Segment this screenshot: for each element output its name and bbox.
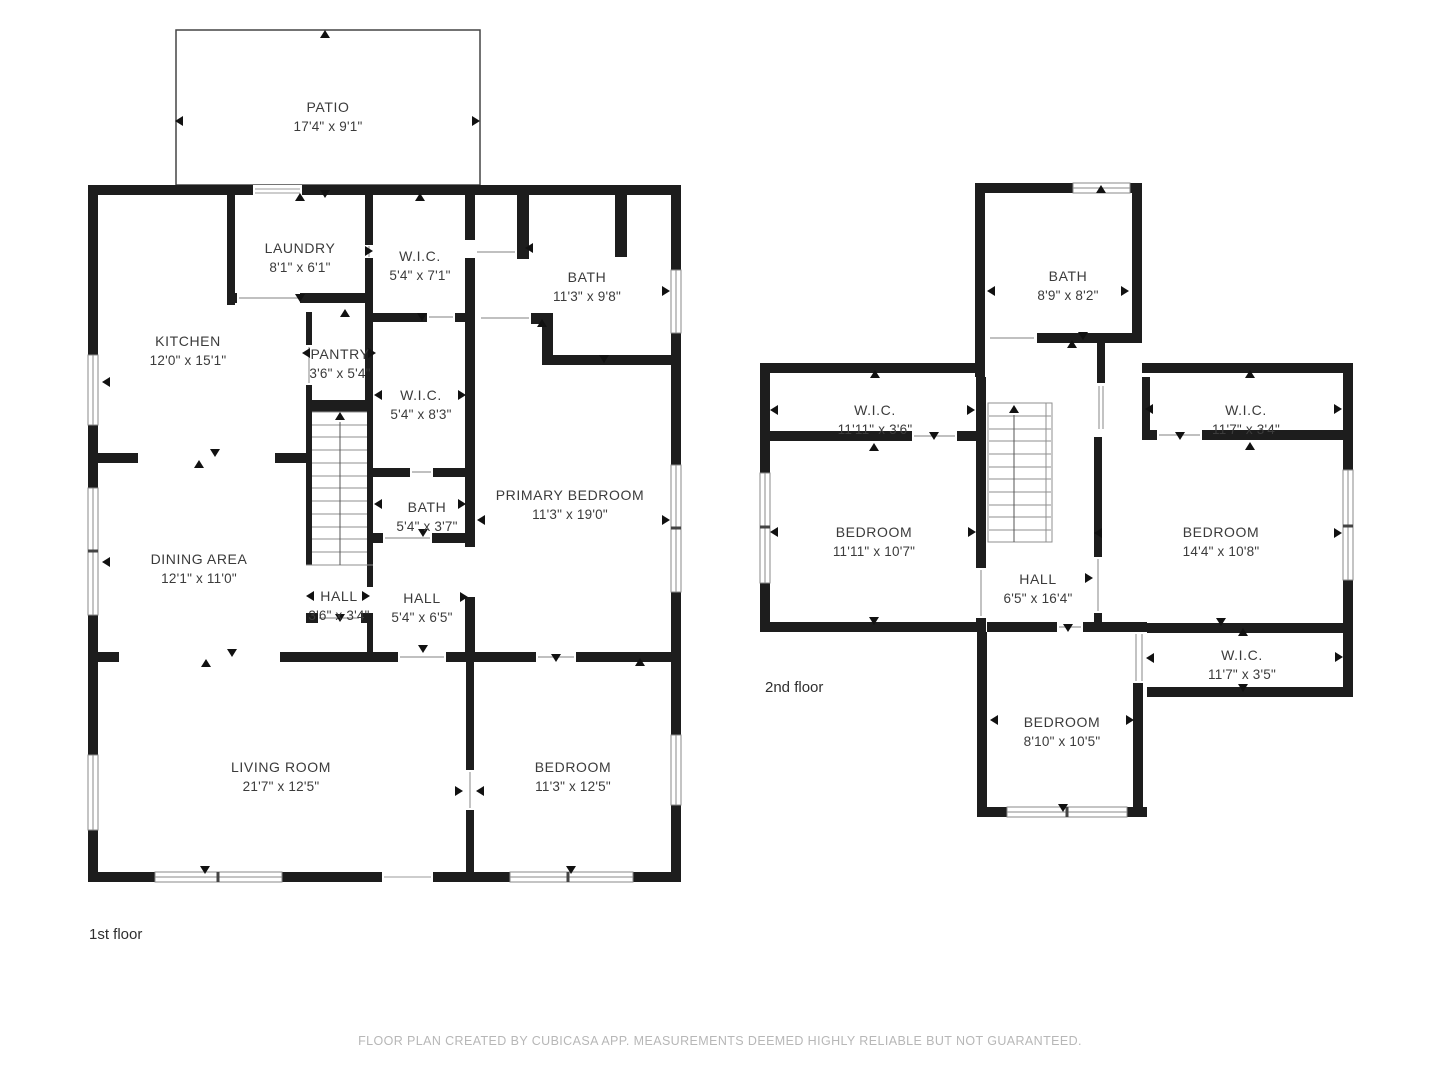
dimension-arrows xyxy=(102,30,1343,874)
room-dims: 11'3" x 12'5" xyxy=(535,777,612,797)
room-label-bath-main: BATH 11'3" x 9'8" xyxy=(553,267,621,307)
room-label-living-room: LIVING ROOM 21'7" x 12'5" xyxy=(231,757,331,797)
room-label-dining-area: DINING AREA 12'1" x 11'0" xyxy=(151,549,248,589)
floor-plan-page: PATIO 17'4" x 9'1" LAUNDRY 8'1" x 6'1" K… xyxy=(0,0,1440,1080)
room-name: W.I.C. xyxy=(389,246,450,266)
room-name: W.I.C. xyxy=(1208,645,1276,665)
room-label-kitchen: KITCHEN 12'0" x 15'1" xyxy=(150,331,227,371)
room-dims: 8'1" x 6'1" xyxy=(265,258,336,278)
room-dims: 12'0" x 15'1" xyxy=(150,351,227,371)
room-label-primary-bedroom: PRIMARY BEDROOM 11'3" x 19'0" xyxy=(496,485,645,525)
room-dims: 12'1" x 11'0" xyxy=(151,569,248,589)
room-name: BATH xyxy=(396,497,457,517)
room-label-bedroom-left-2f: BEDROOM 11'11" x 10'7" xyxy=(833,522,915,562)
room-name: LIVING ROOM xyxy=(231,757,331,777)
room-dims: 11'11" x 10'7" xyxy=(833,542,915,562)
room-dims: 6'5" x 16'4" xyxy=(1004,589,1073,609)
room-name: HALL xyxy=(308,586,369,606)
room-dims: 5'4" x 3'7" xyxy=(396,517,457,537)
room-label-laundry: LAUNDRY 8'1" x 6'1" xyxy=(265,238,336,278)
floor-label-second: 2nd floor xyxy=(765,679,823,696)
floor-label-first: 1st floor xyxy=(89,926,142,943)
room-label-wic-mid: W.I.C. 5'4" x 8'3" xyxy=(390,385,451,425)
room-name: LAUNDRY xyxy=(265,238,336,258)
room-name: BEDROOM xyxy=(535,757,612,777)
room-dims: 8'9" x 8'2" xyxy=(1037,286,1098,306)
room-label-pantry: PANTRY 3'6" x 5'4" xyxy=(309,344,370,384)
room-name: HALL xyxy=(391,588,452,608)
room-name: BATH xyxy=(553,267,621,287)
room-dims: 3'6" x 5'4" xyxy=(309,364,370,384)
room-label-wic-right-bottom-2f: W.I.C. 11'7" x 3'5" xyxy=(1208,645,1276,685)
room-label-hall-small: HALL 3'6" x 3'4" xyxy=(308,586,369,626)
room-name: W.I.C. xyxy=(1212,400,1280,420)
room-label-wic-top: W.I.C. 5'4" x 7'1" xyxy=(389,246,450,286)
room-label-wic-left-2f: W.I.C. 11'11" x 3'6" xyxy=(838,400,913,440)
room-label-hall-2f: HALL 6'5" x 16'4" xyxy=(1004,569,1073,609)
room-dims: 11'3" x 9'8" xyxy=(553,287,621,307)
room-label-hall-main: HALL 5'4" x 6'5" xyxy=(391,588,452,628)
room-name: PRIMARY BEDROOM xyxy=(496,485,645,505)
room-name: DINING AREA xyxy=(151,549,248,569)
room-label-bedroom-right-2f: BEDROOM 14'4" x 10'8" xyxy=(1183,522,1260,562)
room-label-bath-small: BATH 5'4" x 3'7" xyxy=(396,497,457,537)
room-label-bath-2f: BATH 8'9" x 8'2" xyxy=(1037,266,1098,306)
room-dims: 11'11" x 3'6" xyxy=(838,420,913,440)
room-dims: 3'6" x 3'4" xyxy=(308,606,369,626)
room-dims: 5'4" x 7'1" xyxy=(389,266,450,286)
footer-disclaimer: FLOOR PLAN CREATED BY CUBICASA APP. MEAS… xyxy=(0,1034,1440,1048)
room-dims: 5'4" x 8'3" xyxy=(390,405,451,425)
room-name: BEDROOM xyxy=(1183,522,1260,542)
room-dims: 17'4" x 9'1" xyxy=(294,117,363,137)
first-floor-stairs xyxy=(306,412,373,565)
room-name: BEDROOM xyxy=(833,522,915,542)
room-name: HALL xyxy=(1004,569,1073,589)
room-label-patio: PATIO 17'4" x 9'1" xyxy=(294,97,363,137)
room-dims: 8'10" x 10'5" xyxy=(1024,732,1101,752)
first-floor-walls xyxy=(88,30,681,882)
room-name: W.I.C. xyxy=(838,400,913,420)
room-label-wic-right-top-2f: W.I.C. 11'7" x 3'4" xyxy=(1212,400,1280,440)
room-dims: 11'7" x 3'5" xyxy=(1208,665,1276,685)
room-name: PANTRY xyxy=(309,344,370,364)
room-name: BEDROOM xyxy=(1024,712,1101,732)
room-name: KITCHEN xyxy=(150,331,227,351)
room-dims: 11'3" x 19'0" xyxy=(496,505,645,525)
room-label-bedroom-bottom-2f: BEDROOM 8'10" x 10'5" xyxy=(1024,712,1101,752)
room-name: BATH xyxy=(1037,266,1098,286)
room-name: PATIO xyxy=(294,97,363,117)
room-name: W.I.C. xyxy=(390,385,451,405)
room-dims: 11'7" x 3'4" xyxy=(1212,420,1280,440)
room-dims: 21'7" x 12'5" xyxy=(231,777,331,797)
room-dims: 14'4" x 10'8" xyxy=(1183,542,1260,562)
room-label-bedroom-1f: BEDROOM 11'3" x 12'5" xyxy=(535,757,612,797)
room-dims: 5'4" x 6'5" xyxy=(391,608,452,628)
second-floor-stairs xyxy=(988,403,1052,542)
